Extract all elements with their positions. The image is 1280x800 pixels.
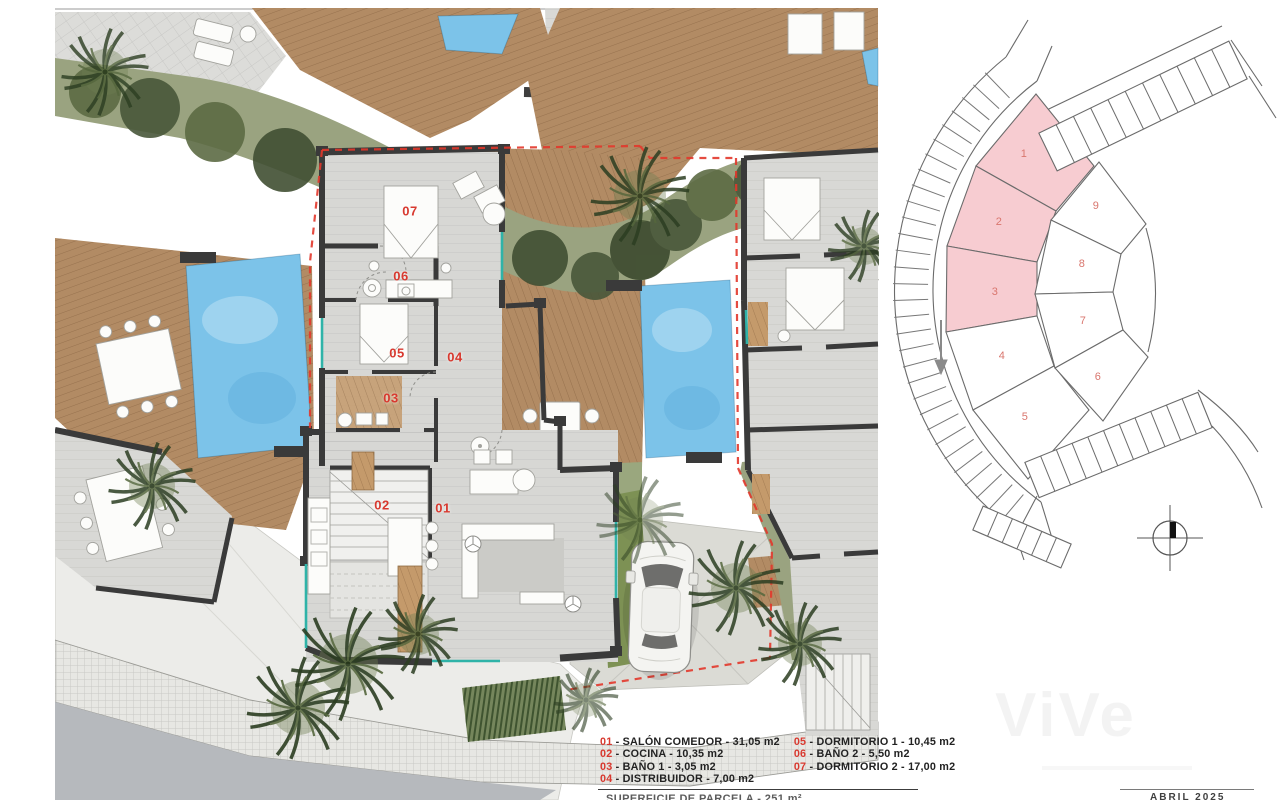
legend-area: 10,35 m2 [676,748,723,760]
plot-number-7: 7 [1080,315,1087,327]
legend-name: DORMITORIO 2 [816,761,897,773]
legend-sep: - [806,761,816,773]
site-plan-art [893,20,1276,568]
legend-name: DISTRIBUIDOR [623,773,703,785]
legend-item: 06 - BAÑO 2 - 5,50 m2 [794,748,955,760]
legend-sep: - [858,748,868,760]
legend-name: BAÑO 2 [816,748,858,760]
legend-sep: - [898,736,908,748]
legend-sep: - [898,761,908,773]
legend-item: 07 - DORMITORIO 2 - 17,00 m2 [794,761,955,773]
legend-sep: - [612,761,622,773]
car [620,539,701,682]
legend-num: 06 [794,748,806,760]
room-label-06: 06 [393,269,408,284]
plot-number-3: 3 [992,286,999,298]
legend-sep: - [806,748,816,760]
legend-name: DORMITORIO 1 [816,736,897,748]
plot-number-5: 5 [1022,411,1029,423]
legend-item: 04 - DISTRIBUIDOR - 7,00 m2 [600,773,780,785]
legend-area: 7,00 m2 [713,773,754,785]
room-label-03: 03 [383,391,398,406]
legend-sep: - [806,736,816,748]
plot-number-8: 8 [1079,258,1086,270]
legend-num: 05 [794,736,806,748]
room-legend: 01 - SALÓN COMEDOR - 31,05 m2 02 - COCIN… [600,736,955,786]
watermark-logo: ViVe [995,680,1137,751]
legend-item: 01 - SALÓN COMEDOR - 31,05 m2 [600,736,780,748]
plot-number-1: 1 [1021,148,1028,160]
plot-number-4: 4 [999,350,1006,362]
room-label-05: 05 [389,346,404,361]
plot-number-6: 6 [1095,371,1102,383]
legend-sep: - [612,736,622,748]
legend-item: 05 - DORMITORIO 1 - 10,45 m2 [794,736,955,748]
road-arrow [935,320,947,374]
legend-area: 5,50 m2 [869,748,910,760]
room-label-02: 02 [374,498,389,513]
legend-name: SALÓN COMEDOR [623,736,723,748]
legend-area: 31,05 m2 [733,736,780,748]
compass-icon [1137,505,1203,571]
date-label: ABRIL 2025 [1150,792,1260,800]
legend-column-1: 01 - SALÓN COMEDOR - 31,05 m2 02 - COCIN… [600,736,780,786]
legend-num: 02 [600,748,612,760]
legend-num: 03 [600,761,612,773]
side-table-07 [483,203,505,225]
legend-name: COCINA [623,748,666,760]
legend-sep: - [666,748,676,760]
room-label-04: 04 [447,350,462,365]
legend-num: 01 [600,736,612,748]
plot-number-2: 2 [996,216,1003,228]
parcel-surface-label: SUPERFICIE DE PARCELA - 251 m² [606,793,802,800]
room-label-01: 01 [435,501,450,516]
page: 01 02 03 04 05 06 07 1 2 3 4 5 6 7 8 9 V… [0,0,1280,800]
legend-item: 02 - COCINA - 10,35 m2 [600,748,780,760]
legend-sep: - [665,761,675,773]
legend-sep: - [612,773,622,785]
plot-number-9: 9 [1093,200,1100,212]
watermark-subline [1042,766,1192,770]
floor-plan-art [55,8,900,800]
legend-column-2: 05 - DORMITORIO 1 - 10,45 m2 06 - BAÑO 2… [794,736,955,786]
legend-name: BAÑO 1 [623,761,665,773]
legend-area: 10,45 m2 [908,736,955,748]
pool-left-neighbor [180,252,312,458]
footer-rule-left [598,789,918,790]
room-label-07: 07 [402,204,417,219]
legend-sep: - [612,748,622,760]
legend-num: 04 [600,773,612,785]
legend-item: 03 - BAÑO 1 - 3,05 m2 [600,761,780,773]
legend-sep: - [722,736,732,748]
footer-rule-right [1120,789,1254,790]
legend-area: 3,05 m2 [675,761,716,773]
neighbor-stairs [806,654,870,730]
legend-area: 17,00 m2 [908,761,955,773]
legend-sep: - [703,773,713,785]
legend-num: 07 [794,761,806,773]
